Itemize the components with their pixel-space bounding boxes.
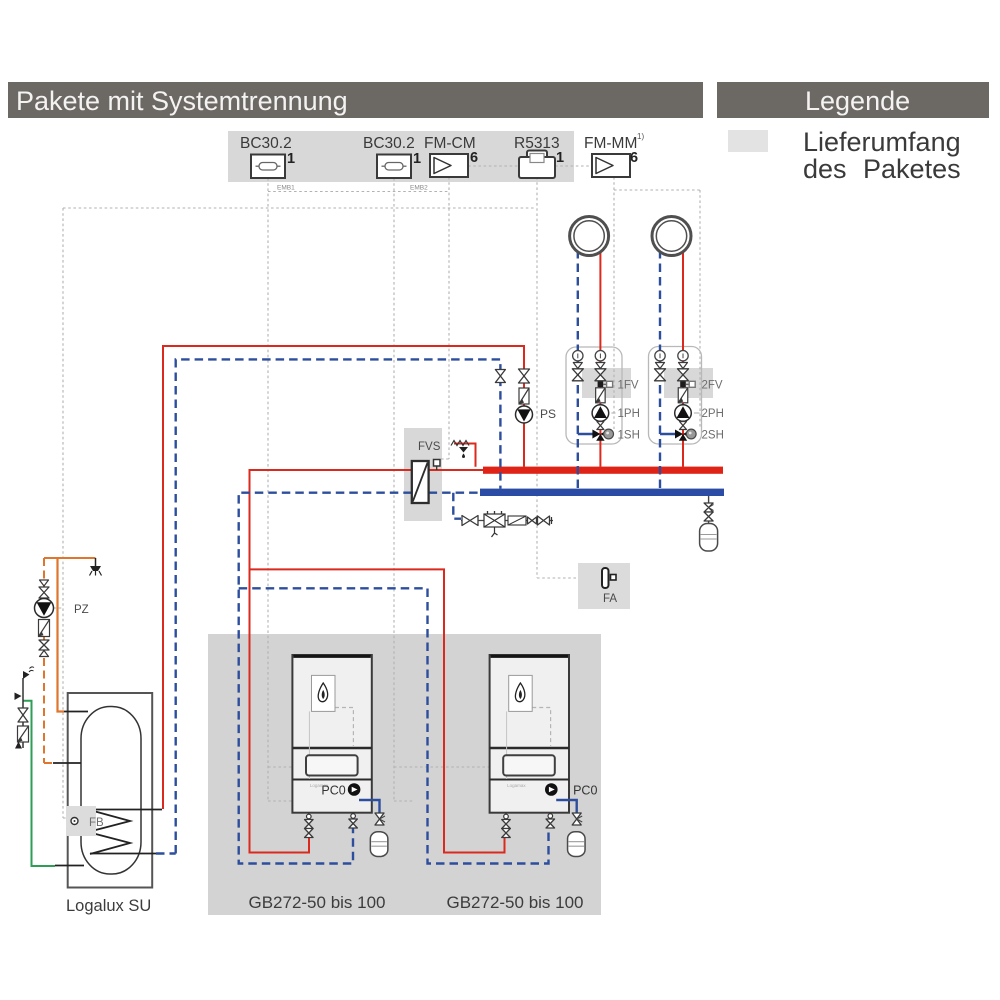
svg-text:1: 1 [287,151,295,167]
svg-text:1SH: 1SH [618,430,640,442]
svg-text:FA: FA [603,593,617,605]
svg-text:1): 1) [637,132,644,141]
svg-text:6: 6 [470,150,478,166]
svg-text:2PH: 2PH [702,408,724,420]
svg-text:EMB1: EMB1 [277,185,295,192]
svg-text:des Paketes: des Paketes [803,154,961,184]
svg-text:PZ: PZ [74,604,89,616]
svg-text:Logamax: Logamax [507,783,526,788]
svg-text:6: 6 [630,150,638,166]
svg-text:FM-CM: FM-CM [424,135,476,152]
svg-text:PC0: PC0 [573,784,597,798]
svg-text:BC30.2: BC30.2 [240,135,292,152]
svg-text:Pakete mit Systemtrennung: Pakete mit Systemtrennung [16,86,348,116]
svg-text:GB272-50 bis 100: GB272-50 bis 100 [446,893,583,912]
svg-text:Legende: Legende [805,86,910,116]
svg-text:2SH: 2SH [702,430,724,442]
svg-text:PS: PS [540,407,556,421]
svg-text:GB272-50 bis 100: GB272-50 bis 100 [248,893,385,912]
svg-text:1FV: 1FV [618,380,639,392]
svg-text:1PH: 1PH [618,408,640,420]
svg-text:2FV: 2FV [702,380,723,392]
svg-text:FB: FB [89,817,104,829]
svg-text:1: 1 [556,150,564,166]
svg-text:PC0: PC0 [321,784,345,798]
svg-text:Lieferumfang: Lieferumfang [803,127,961,157]
svg-text:BC30.2: BC30.2 [363,135,415,152]
svg-text:R5313: R5313 [514,135,560,152]
svg-text:1: 1 [413,151,421,167]
svg-text:Logalux SU: Logalux SU [66,897,151,915]
svg-text:EMB2: EMB2 [410,185,428,192]
svg-text:FVS: FVS [418,441,441,453]
